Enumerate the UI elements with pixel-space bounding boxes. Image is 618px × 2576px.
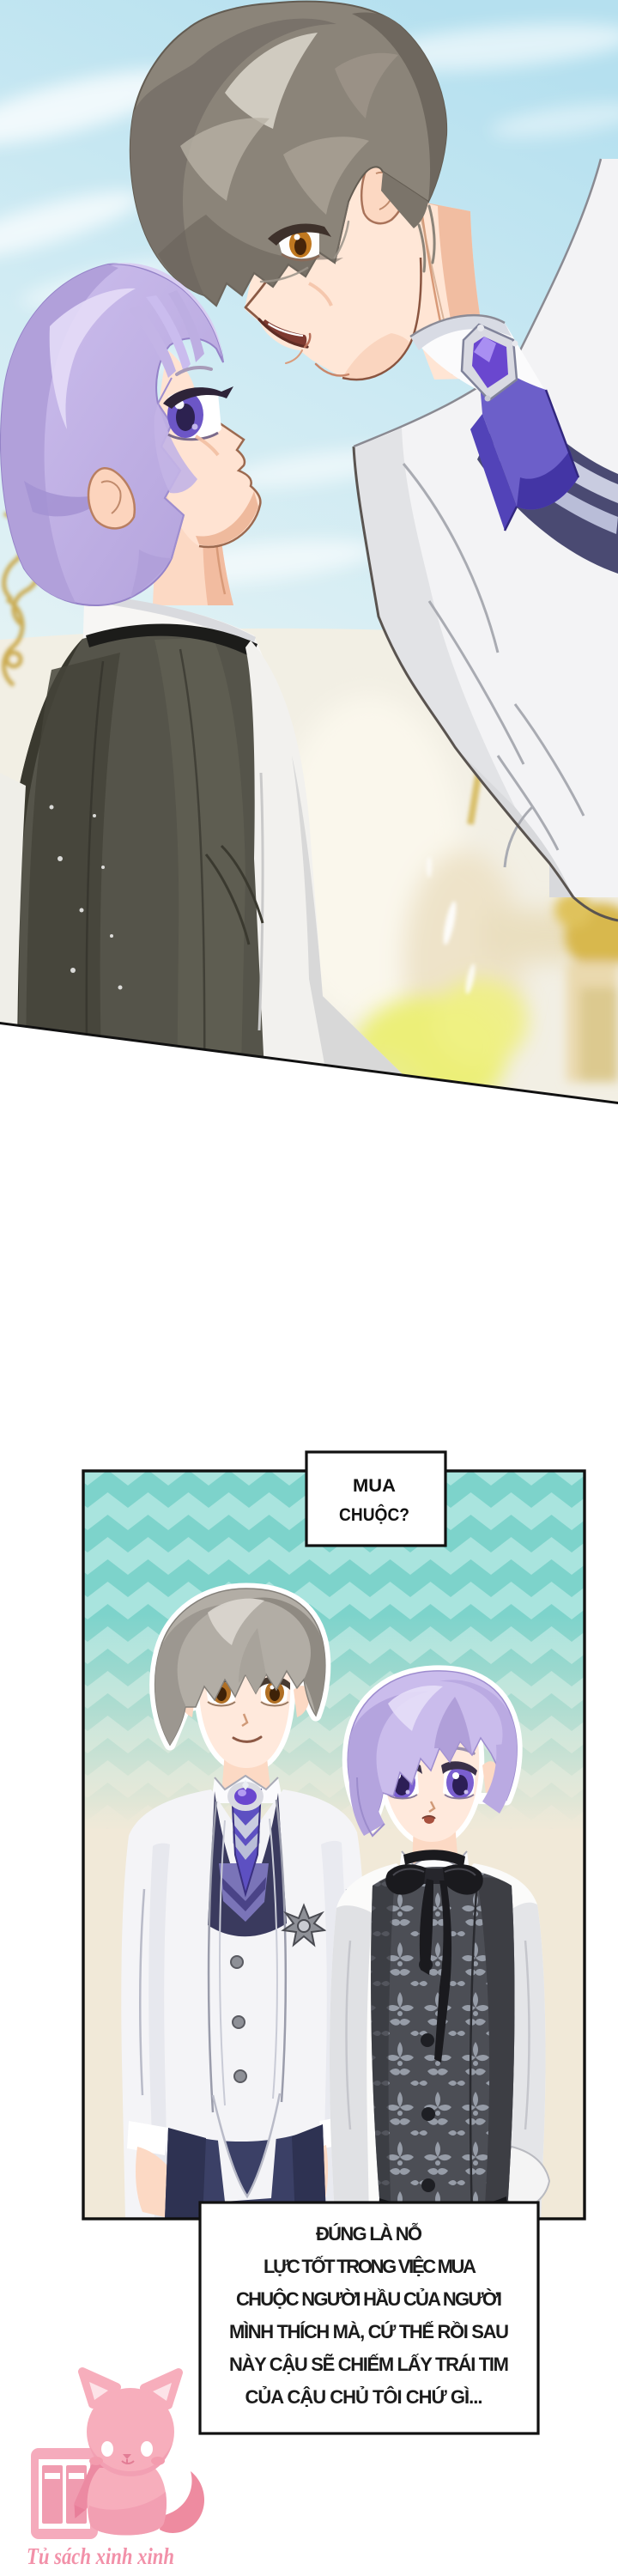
- svg-text:ĐÚNG LÀ NỖ: ĐÚNG LÀ NỖ: [316, 2222, 422, 2245]
- svg-text:NÀY CẬU SẼ CHIẾM LẤY TRÁI TIM: NÀY CẬU SẼ CHIẾM LẤY TRÁI TIM: [229, 2354, 509, 2375]
- svg-text:MUA: MUA: [353, 1476, 396, 1496]
- svg-text:CHUỘC NGƯỜI HẦU CỦA NGƯỜI: CHUỘC NGƯỜI HẦU CỦA NGƯỜI: [236, 2288, 502, 2310]
- svg-text:Tủ sách xinh xinh: Tủ sách xinh xinh: [27, 2543, 174, 2569]
- svg-text:CỦA CẬU CHỦ TÔI CHỨ GÌ...: CỦA CẬU CHỦ TÔI CHỨ GÌ...: [245, 2386, 483, 2408]
- svg-text:LỰC TỐT TRONG VIỆC MUA: LỰC TỐT TRONG VIỆC MUA: [264, 2255, 476, 2277]
- svg-text:MÌNH THÍCH MÀ, CỨ THẾ RỒI SAU: MÌNH THÍCH MÀ, CỨ THẾ RỒI SAU: [229, 2321, 509, 2342]
- svg-text:CHUỘC?: CHUỘC?: [339, 1504, 409, 1525]
